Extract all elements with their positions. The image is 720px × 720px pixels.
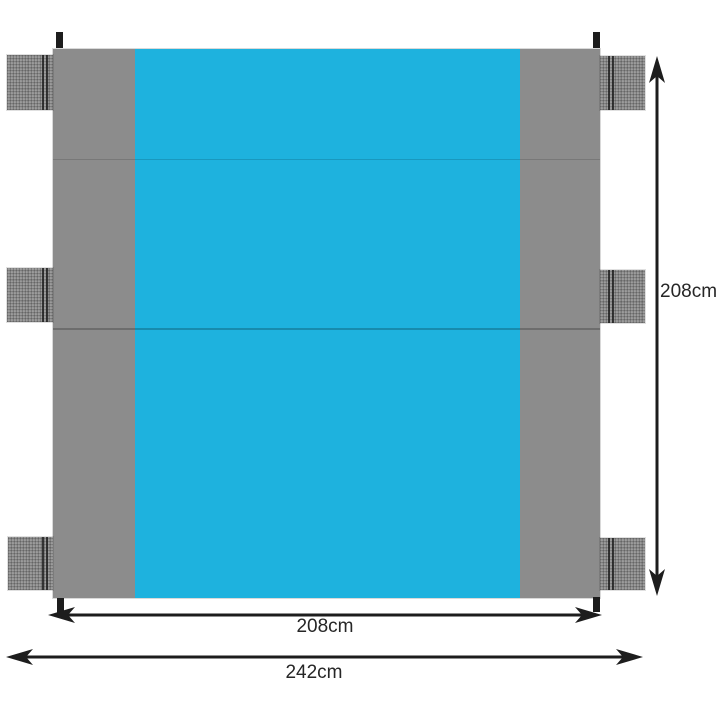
pocket-stitch-line [608, 56, 610, 110]
pocket-stitch-line [46, 55, 48, 110]
pocket-stitch-line [46, 268, 48, 322]
blanket-center-blue-panel [135, 49, 520, 598]
blanket-right-gray-band [520, 49, 600, 598]
pocket-stitch-line [612, 538, 614, 590]
pocket-stitch-line [608, 270, 610, 323]
pocket-stitch-line [612, 270, 614, 323]
anchor-pocket-left-middle [7, 268, 53, 322]
diagram-canvas: 208cm 208cm 242cm [0, 0, 720, 720]
anchor-pocket-left-bottom [8, 537, 53, 590]
inner-width-dimension-label: 208cm [296, 617, 353, 637]
pocket-stitch-line [608, 538, 610, 590]
height-dimension-arrow [645, 55, 669, 597]
blanket-left-gray-band [53, 49, 135, 598]
anchor-pocket-right-bottom [600, 538, 645, 590]
corner-tick-top-left [56, 32, 63, 48]
total-width-dimension-label: 242cm [285, 663, 342, 683]
pocket-stitch-line [46, 537, 48, 590]
anchor-pocket-left-top [7, 55, 53, 110]
pocket-stitch-line [42, 537, 44, 590]
anchor-pocket-right-top [600, 56, 645, 110]
height-dimension-label: 208cm [660, 282, 717, 302]
corner-tick-top-right [593, 32, 600, 48]
anchor-pocket-right-middle [600, 270, 645, 323]
pocket-stitch-line [42, 268, 44, 322]
pocket-stitch-line [612, 56, 614, 110]
pocket-stitch-line [42, 55, 44, 110]
beach-blanket [53, 49, 600, 598]
